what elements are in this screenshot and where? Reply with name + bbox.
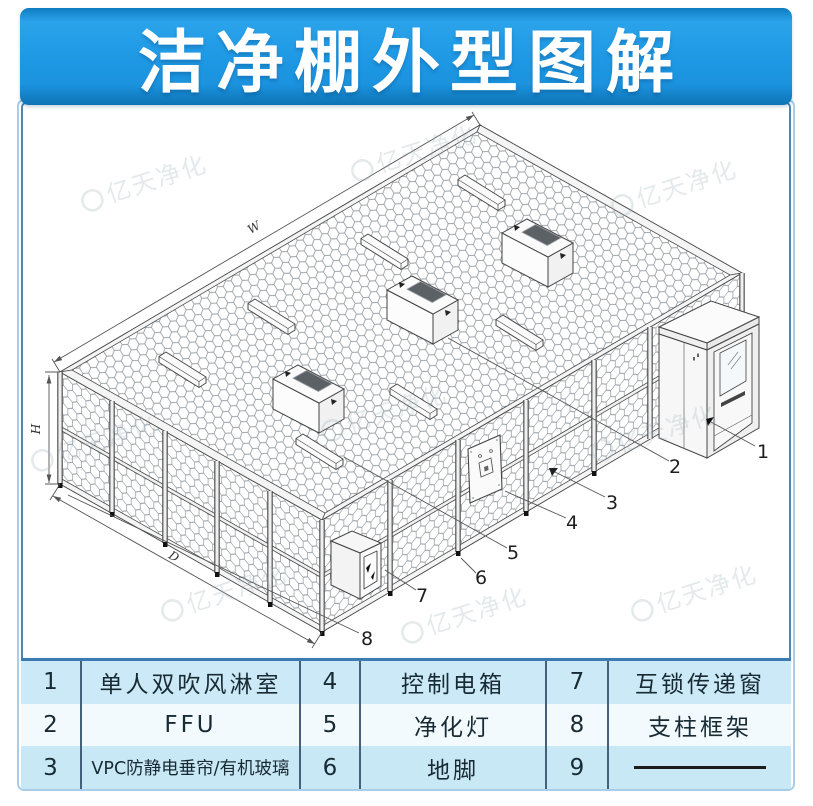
- legend-label: 互锁传递窗: [609, 661, 791, 704]
- svg-text:7: 7: [416, 585, 428, 607]
- legend-label: 支柱框架: [609, 704, 791, 747]
- legend-num: 7: [547, 661, 609, 704]
- svg-text:8: 8: [361, 628, 373, 650]
- legend-label: 地脚: [361, 746, 547, 789]
- svg-text:5: 5: [507, 542, 519, 564]
- legend-label: 净化灯: [361, 704, 547, 747]
- legend-num: 5: [301, 704, 361, 747]
- legend-num: 6: [301, 746, 361, 789]
- svg-text:H: H: [29, 423, 43, 435]
- legend-label: 控制电箱: [361, 661, 547, 704]
- legend-num: 9: [547, 746, 609, 789]
- legend-label: 单人双吹风淋室: [82, 661, 301, 704]
- legend-num: 2: [21, 704, 82, 747]
- svg-text:亿天净化: 亿天净化: [103, 150, 211, 209]
- page-title: 洁净棚外型图解: [128, 7, 684, 106]
- transfer-window: [331, 531, 381, 599]
- legend-num: 8: [547, 704, 609, 747]
- legend-num: 1: [21, 661, 82, 704]
- legend-num: 3: [21, 746, 82, 789]
- svg-text:2: 2: [669, 456, 681, 478]
- legend-table: 1 单人双吹风淋室 4 控制电箱 7 互锁传递窗 2 FFU 5 净化灯 8 支…: [21, 658, 791, 789]
- svg-text:亿天净化: 亿天净化: [423, 582, 531, 641]
- legend-num: 4: [301, 661, 361, 704]
- legend-blank-cell: [609, 746, 791, 789]
- legend-dash: [634, 766, 766, 769]
- page: W H D: [0, 0, 813, 806]
- svg-text:1: 1: [757, 441, 769, 463]
- svg-text:3: 3: [606, 492, 618, 514]
- svg-text:W: W: [245, 218, 264, 237]
- svg-text:6: 6: [475, 567, 487, 589]
- header-banner: 洁净棚外型图解: [20, 8, 792, 105]
- svg-text:4: 4: [566, 512, 578, 534]
- svg-text:亿天净化: 亿天净化: [653, 560, 761, 619]
- svg-text:亿天净化: 亿天净化: [633, 155, 741, 214]
- callout-6: 6: [461, 558, 487, 589]
- legend-label: FFU: [82, 704, 301, 747]
- legend-label: VPC防静电垂帘/有机玻璃: [82, 746, 301, 789]
